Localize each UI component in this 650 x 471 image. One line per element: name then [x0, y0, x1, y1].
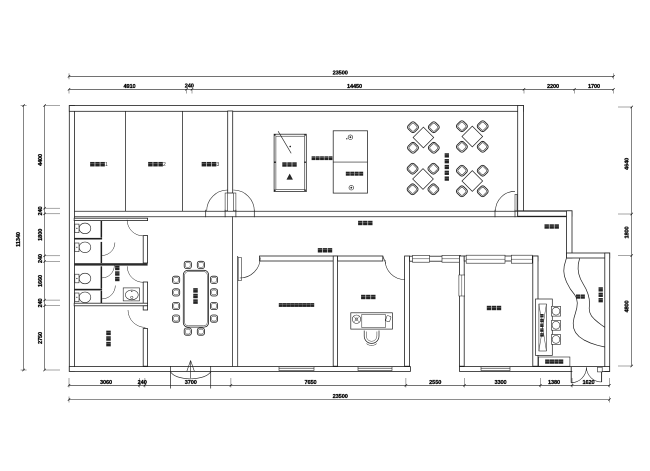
svg-text:2750: 2750 — [38, 332, 44, 344]
svg-text:23500: 23500 — [333, 70, 348, 76]
svg-text:240: 240 — [138, 380, 147, 386]
svg-text:240: 240 — [185, 84, 194, 90]
svg-text:2550: 2550 — [429, 380, 441, 386]
svg-text:240: 240 — [38, 206, 44, 215]
svg-text:2200: 2200 — [547, 84, 559, 90]
svg-text:7650: 7650 — [304, 380, 316, 386]
svg-text:23500: 23500 — [333, 394, 348, 400]
svg-text:4800: 4800 — [625, 300, 631, 312]
svg-text:14450: 14450 — [347, 84, 362, 90]
svg-text:240: 240 — [38, 298, 44, 307]
svg-text:1800: 1800 — [625, 226, 631, 238]
svg-text:1660: 1660 — [38, 275, 44, 287]
svg-text:3: 3 — [217, 162, 220, 168]
svg-text:240: 240 — [38, 254, 44, 263]
svg-text:4400: 4400 — [38, 154, 44, 166]
svg-text:1: 1 — [105, 162, 108, 168]
svg-text:4910: 4910 — [123, 84, 135, 90]
svg-text:4640: 4640 — [625, 158, 631, 170]
svg-text:1700: 1700 — [588, 84, 600, 90]
svg-text:2: 2 — [163, 162, 166, 168]
svg-text:3060: 3060 — [100, 380, 112, 386]
svg-text:1380: 1380 — [548, 380, 560, 386]
svg-text:1800: 1800 — [38, 229, 44, 241]
svg-text:3700: 3700 — [185, 380, 197, 386]
svg-text:3300: 3300 — [494, 380, 506, 386]
svg-text:11340: 11340 — [16, 232, 22, 247]
svg-text:1620: 1620 — [582, 380, 594, 386]
